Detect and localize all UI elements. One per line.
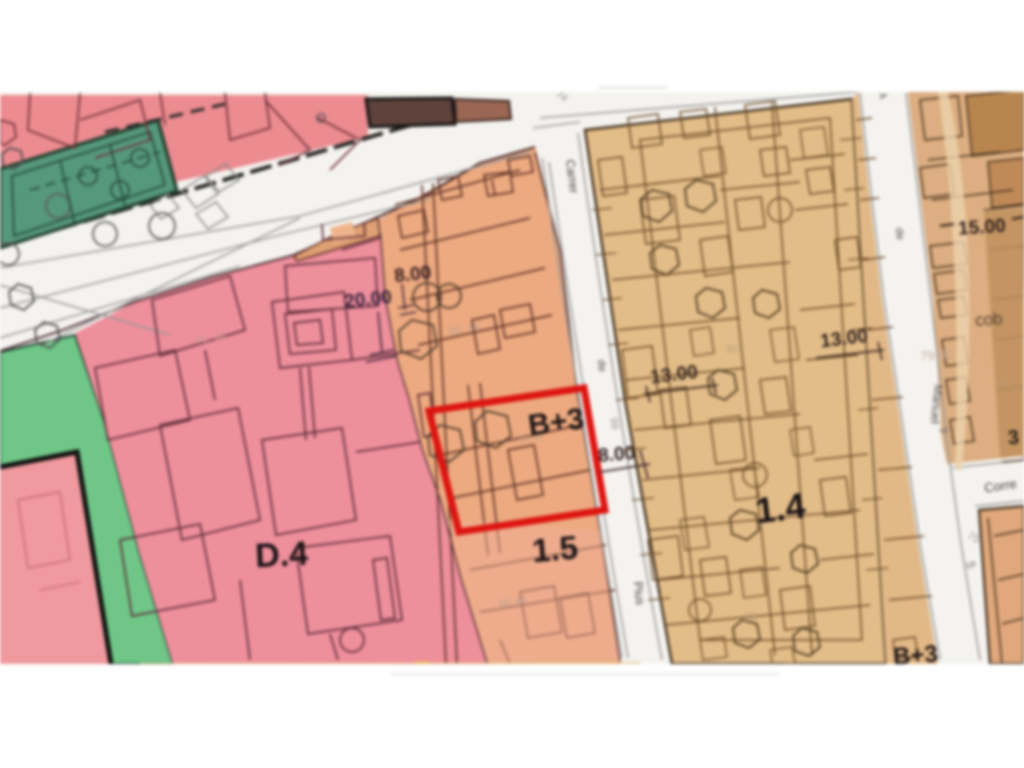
svg-text:3: 3: [1007, 427, 1020, 450]
svg-text:22: 22: [743, 610, 757, 624]
svg-text:1.4: 1.4: [753, 485, 808, 532]
svg-text:90.: 90.: [998, 377, 1015, 391]
svg-text:de: de: [595, 359, 608, 372]
svg-text:de: de: [893, 227, 906, 240]
svg-text:8.00: 8.00: [393, 262, 432, 287]
svg-text:1.5: 1.5: [531, 528, 580, 569]
svg-text:8.00: 8.00: [597, 443, 636, 467]
svg-text:9: 9: [937, 427, 949, 434]
svg-text:Pius: Pius: [631, 581, 647, 606]
svg-text:cob: cob: [974, 309, 1003, 330]
svg-text:80.: 80.: [725, 342, 742, 356]
svg-text:D.4: D.4: [254, 535, 309, 576]
svg-text:99: 99: [607, 416, 621, 430]
svg-text:15.00: 15.00: [957, 216, 1006, 240]
